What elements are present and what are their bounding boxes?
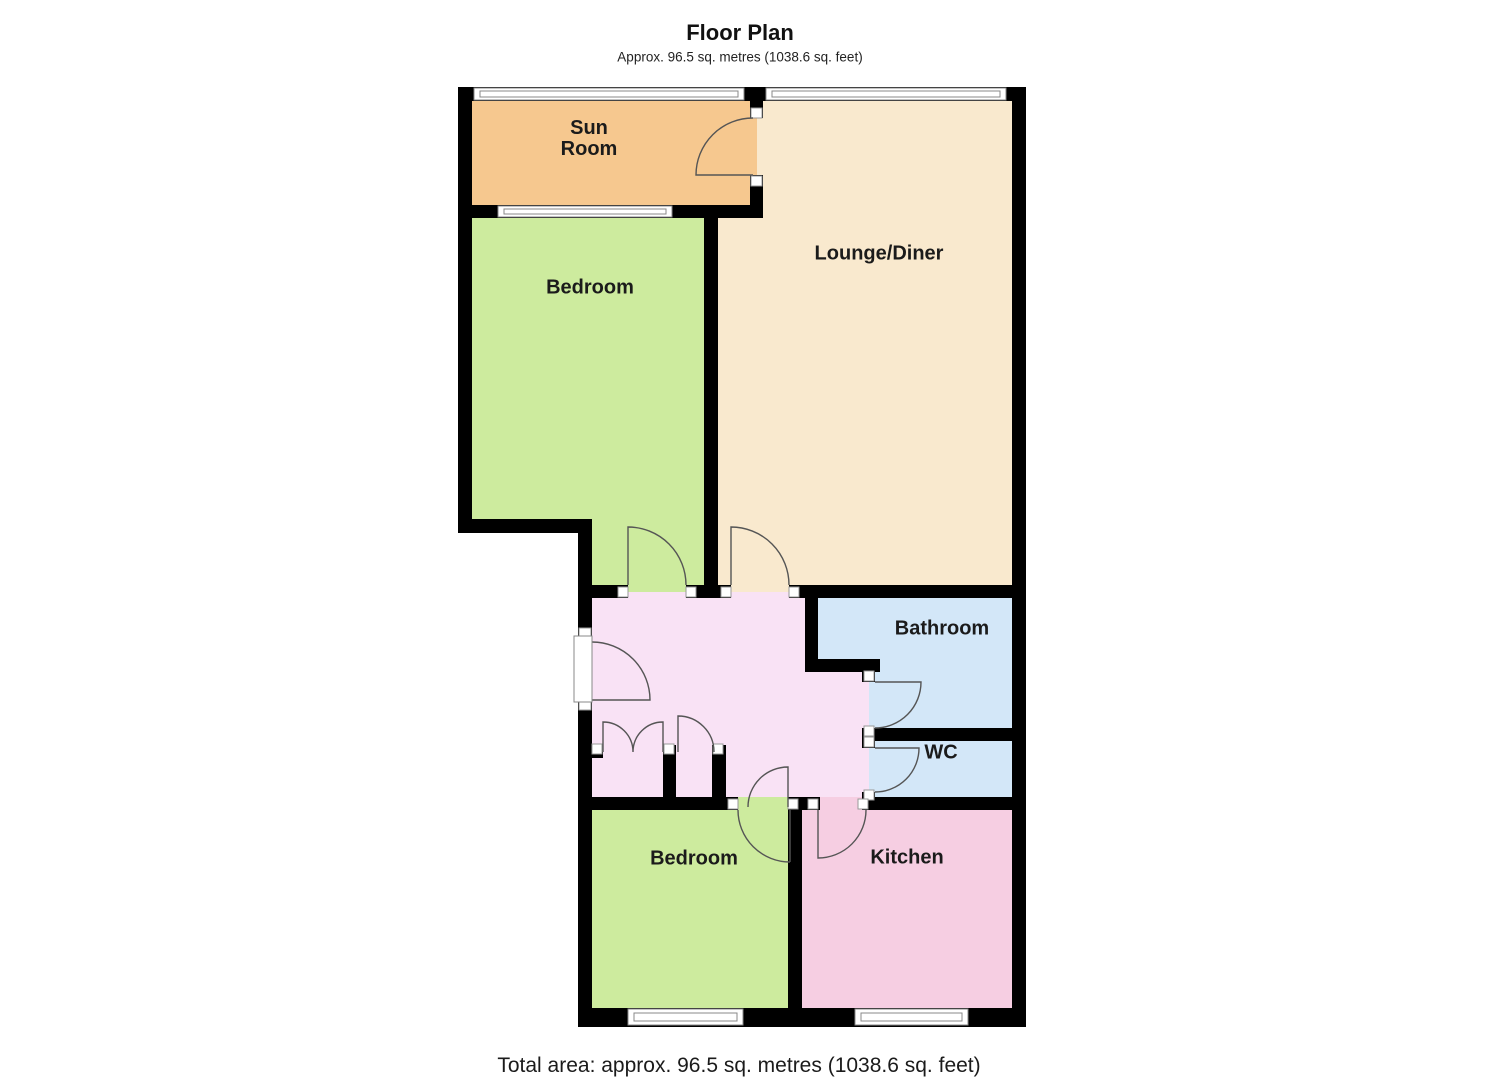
door-jamb — [728, 799, 738, 809]
door-jamb — [686, 587, 696, 597]
door-jamb — [592, 744, 602, 754]
door-jamb — [864, 737, 874, 747]
door-jamb — [788, 799, 798, 809]
window-sun-room-bedroom — [498, 206, 672, 217]
wall-segment — [1012, 87, 1026, 1027]
room-label-sun-room: Sun Room — [561, 118, 618, 160]
hallway-floor-extension — [812, 659, 869, 810]
door-jamb — [664, 744, 674, 754]
window-lounge-top — [766, 88, 1006, 100]
wall-segment — [864, 797, 1026, 810]
door-jamb — [864, 671, 874, 681]
front-door-panel — [574, 636, 592, 702]
window-kitchen-bottom — [855, 1009, 968, 1025]
door-jamb — [751, 108, 762, 118]
sun-room-label-line1: Sun — [561, 118, 618, 139]
room-label-bedroom-bottom: Bedroom — [650, 849, 738, 870]
bedroom-bottom-floor — [585, 797, 797, 1014]
room-label-lounge-diner: Lounge/Diner — [815, 244, 944, 265]
door-jamb — [751, 176, 762, 186]
hallway-floor — [585, 592, 818, 810]
wall-segment — [862, 728, 1013, 741]
total-area-text: Total area: approx. 96.5 sq. metres (103… — [497, 1054, 980, 1078]
floor-plan-page: Floor Plan Approx. 96.5 sq. metres (1038… — [0, 0, 1485, 1080]
door-jamb — [864, 726, 874, 736]
room-label-wc: WC — [924, 743, 957, 764]
wall-segment — [663, 745, 676, 810]
room-label-kitchen: Kitchen — [870, 848, 943, 869]
window-bedroom-bottom — [628, 1009, 743, 1025]
door-jamb — [789, 587, 799, 597]
room-label-bedroom-top: Bedroom — [546, 278, 634, 299]
door-jamb — [808, 799, 818, 809]
wall-segment — [712, 745, 726, 810]
wall-segment — [704, 205, 718, 598]
door-jamb — [858, 799, 868, 809]
floor-plan-drawing — [0, 0, 1485, 1080]
room-label-bathroom: Bathroom — [895, 619, 989, 640]
wall-segment — [805, 585, 818, 665]
door-jamb — [618, 587, 628, 597]
floors — [472, 101, 1013, 1014]
kitchen-floor — [795, 797, 1013, 1014]
wall-segment — [789, 585, 1026, 598]
wall-segment — [458, 87, 472, 533]
bedroom-top-floor — [472, 212, 712, 531]
sun-room-label-line2: Room — [561, 139, 618, 160]
door-jamb — [721, 587, 731, 597]
window-sun-room-top — [474, 88, 744, 100]
wall-segment — [458, 519, 592, 533]
